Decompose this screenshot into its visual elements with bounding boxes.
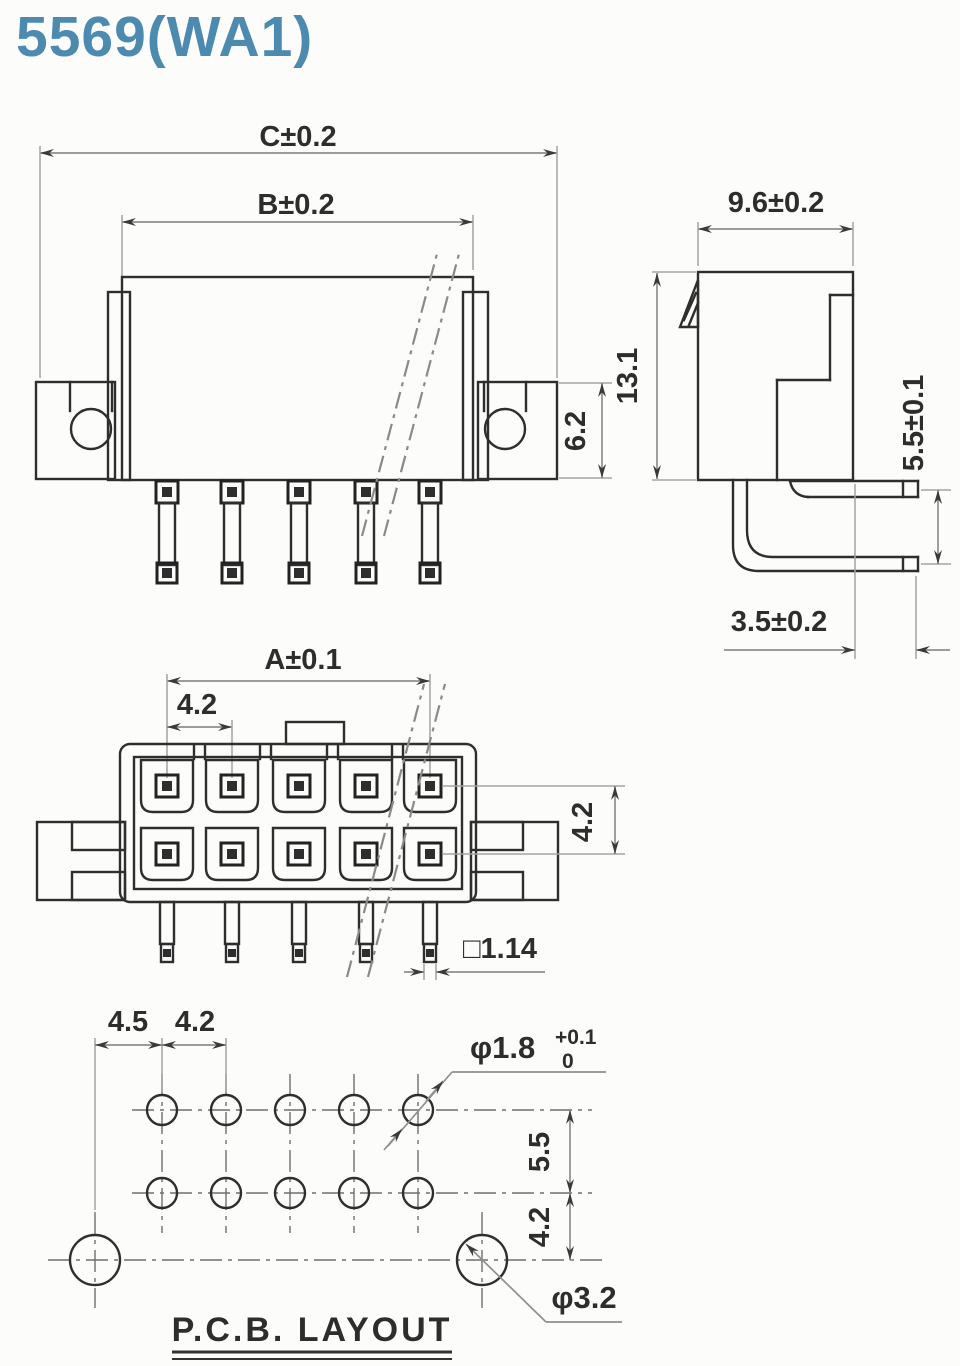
pin-cavity <box>340 760 392 812</box>
pin-tail <box>292 902 306 962</box>
face-bracket-left <box>37 822 125 900</box>
break-line <box>384 250 460 536</box>
mounting-bracket-left <box>36 382 115 479</box>
mount-hole-right <box>485 409 525 449</box>
side-view: 9.6±0.2 13.1 <box>612 187 951 659</box>
dim-row-pitch-label: 4.2 <box>567 802 599 842</box>
pin-cavity <box>206 828 258 880</box>
pin-tail <box>225 902 239 962</box>
face-view: A±0.1 4.2 <box>37 644 625 980</box>
pin-hole-tol-upper: +0.1 <box>555 1026 597 1049</box>
dim-pin-tail-label: 3.5±0.2 <box>731 606 828 638</box>
dim-bracket-height-label: 6.2 <box>560 411 592 451</box>
pcb-layout-view: 4.5 4.2 φ1.8 +0.1 0 5.5 4.2 φ3 <box>48 1006 622 1359</box>
dim-hole-pitch-label: 4.2 <box>175 1006 215 1038</box>
dim-pin-span-label: A±0.1 <box>264 644 341 676</box>
housing-inner-outline <box>134 757 462 889</box>
pin-tail <box>359 902 373 962</box>
datasheet-page: 5569(WA1) <box>0 0 960 1366</box>
face-bracket-right <box>471 822 558 900</box>
mounting-bracket-right <box>478 382 557 479</box>
dim-pin-row-offset-label: 5.5±0.1 <box>898 375 930 472</box>
pin-tail <box>160 902 174 962</box>
pin-cavity <box>141 828 193 880</box>
pin-tail <box>423 902 437 962</box>
dim-pin-pitch-label: 4.2 <box>177 689 217 721</box>
dim-depth-label: 9.6±0.2 <box>728 187 825 219</box>
pin <box>419 481 441 583</box>
connector-body-outline <box>122 277 473 480</box>
mount-hole-diameter-label: φ3.2 <box>551 1280 616 1315</box>
dim-mount-row-gap-label: 4.2 <box>524 1207 556 1247</box>
front-view: C±0.2 B±0.2 6.2 <box>36 121 612 583</box>
technical-drawing: C±0.2 B±0.2 6.2 <box>0 0 960 1366</box>
break-line <box>368 684 445 977</box>
bent-pin-lower <box>733 480 918 571</box>
pin-hole-tol-lower: 0 <box>562 1050 574 1073</box>
pin <box>288 481 310 583</box>
bent-pin-upper <box>790 481 918 497</box>
side-body-steps <box>777 295 853 480</box>
break-line <box>347 684 424 977</box>
pin <box>156 481 178 583</box>
pin <box>355 481 377 583</box>
mount-hole-left <box>71 409 111 449</box>
dim-height-label: 13.1 <box>612 348 644 404</box>
housing-outline <box>120 744 476 902</box>
dim-pin-square-label: □1.14 <box>463 933 537 965</box>
pin-hole-diameter-label: φ1.8 <box>470 1030 535 1065</box>
pcb-layout-caption: P.C.B. LAYOUT <box>172 1311 453 1349</box>
pin <box>221 481 243 583</box>
polarization-rib <box>286 722 344 744</box>
dim-body-width-label: B±0.2 <box>257 189 334 221</box>
dim-overall-width-label: C±0.2 <box>259 121 336 153</box>
dim-row-gap-label: 5.5 <box>524 1132 556 1172</box>
pin-cavity <box>273 828 325 880</box>
dim-mount-to-pin-label: 4.5 <box>108 1006 148 1038</box>
latch-tab <box>680 280 698 327</box>
pin-cavity <box>273 760 325 812</box>
